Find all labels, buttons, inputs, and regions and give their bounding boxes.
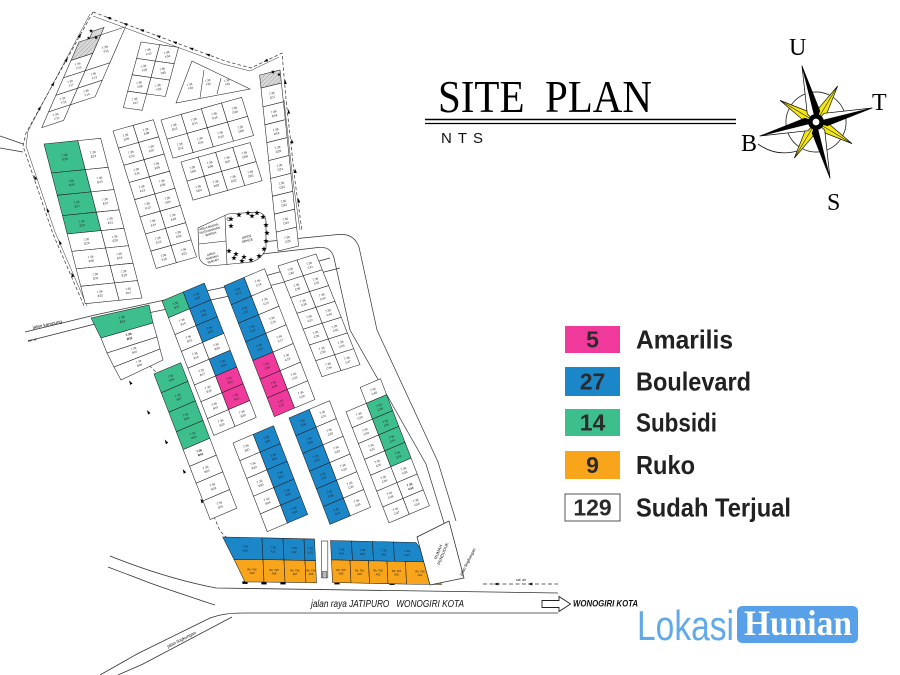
svg-text:Sudah Terjual: Sudah Terjual — [636, 493, 791, 523]
svg-text:Amarilis: Amarilis — [636, 325, 733, 355]
svg-text:WONOGIRI KOTA: WONOGIRI KOTA — [573, 599, 638, 609]
svg-text:sal. air: sal. air — [516, 578, 527, 582]
svg-text:jalan raya JATIPURO WONOGIRI: jalan raya JATIPURO WONOGIRI KOTA — [309, 599, 464, 610]
svg-text:Subsidi: Subsidi — [636, 408, 717, 438]
svg-text:NTS: NTS — [441, 130, 489, 147]
svg-text:7.36A10: 7.36A10 — [242, 544, 248, 552]
svg-text:U: U — [789, 35, 806, 61]
svg-text:Lokasi: Lokasi — [637, 602, 734, 649]
svg-text:7.36A11: 7.36A11 — [270, 545, 276, 553]
svg-text:5: 5 — [586, 327, 599, 353]
svg-text:S: S — [827, 190, 840, 216]
svg-text:129: 129 — [573, 495, 611, 521]
svg-text:SITE PLAN: SITE PLAN — [438, 71, 652, 122]
svg-text:14: 14 — [580, 410, 606, 436]
svg-text:7.36A13: 7.36A13 — [307, 546, 313, 554]
svg-text:7.36A12: 7.36A12 — [291, 546, 297, 554]
svg-text:Ruko: Ruko — [636, 450, 695, 480]
svg-text:B: B — [741, 131, 757, 157]
svg-text:9: 9 — [586, 452, 599, 478]
svg-text:7.36A16: 7.36A16 — [381, 548, 387, 556]
svg-text:27: 27 — [580, 369, 606, 395]
svg-text:Boulevard: Boulevard — [636, 367, 751, 397]
svg-text:7.36A14: 7.36A14 — [339, 547, 345, 555]
svg-text:7.36A17: 7.36A17 — [404, 549, 410, 557]
svg-text:7.36A15: 7.36A15 — [360, 548, 366, 556]
svg-text:T: T — [872, 90, 887, 116]
svg-text:Hunian: Hunian — [744, 603, 852, 643]
